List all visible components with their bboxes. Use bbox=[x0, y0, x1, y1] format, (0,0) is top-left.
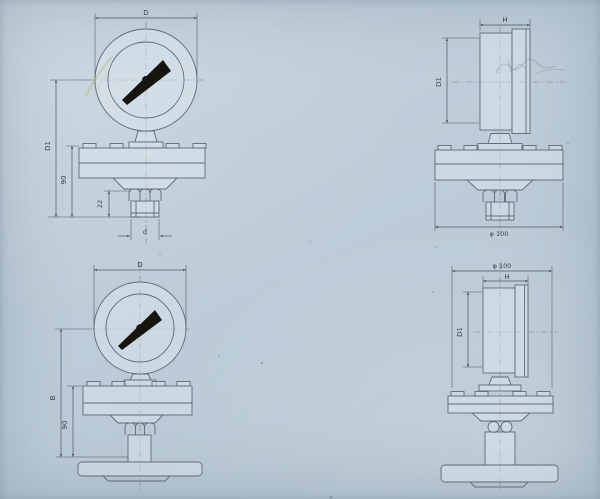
gauge-neck bbox=[130, 374, 151, 380]
hex-fitting-left bbox=[488, 422, 499, 433]
label-body-height: 90 bbox=[61, 421, 69, 430]
neck-collar bbox=[478, 144, 522, 151]
label-dial-diameter: D bbox=[137, 261, 142, 269]
diaphragm-flange bbox=[448, 396, 553, 413]
pencil-tail bbox=[536, 69, 564, 73]
lower-housing bbox=[113, 178, 177, 189]
d1-extension-lines bbox=[442, 38, 479, 123]
label-thread-diameter: d bbox=[143, 228, 147, 236]
gauge-neck bbox=[135, 131, 157, 142]
label-overall-height: D1 bbox=[44, 141, 52, 151]
label-case-depth: H bbox=[504, 273, 509, 281]
gauge-neck bbox=[488, 134, 512, 144]
label-case-depth: H bbox=[502, 16, 507, 24]
hex-fitting-right bbox=[501, 422, 512, 433]
technical-drawing: D D1 90 22 d bbox=[0, 0, 600, 499]
sanitary-flange bbox=[441, 465, 558, 482]
blueprint-page: D D1 90 22 d bbox=[0, 0, 600, 499]
extension-stem bbox=[128, 435, 151, 462]
lower-housing bbox=[110, 415, 163, 423]
label-body-height: 90 bbox=[60, 176, 68, 185]
thread-stud bbox=[131, 201, 159, 217]
label-overall-height: B bbox=[49, 395, 57, 400]
label-dial-diameter: D bbox=[143, 9, 148, 17]
view-front-flanged: D B 90 bbox=[49, 261, 202, 492]
flange-bolts bbox=[451, 392, 550, 397]
thread-stud bbox=[486, 202, 514, 220]
hex-nut bbox=[129, 189, 161, 201]
case-bezel bbox=[512, 29, 530, 134]
label-flange-diameter: φ 100 bbox=[493, 262, 512, 270]
neck-collar bbox=[129, 142, 163, 148]
diaphragm-flange bbox=[435, 150, 563, 180]
label-case-height: D1 bbox=[456, 327, 464, 337]
label-flange-diameter: φ 100 bbox=[490, 230, 509, 238]
label-nut-length: 22 bbox=[96, 200, 104, 208]
case-body bbox=[483, 288, 515, 373]
view-side-threaded: H D1 φ 100 bbox=[435, 16, 566, 238]
d1-extension-lines bbox=[463, 292, 482, 367]
neck-collar bbox=[124, 380, 156, 386]
needle-pivot bbox=[142, 76, 150, 84]
lower-housing bbox=[467, 180, 533, 190]
needle-pivot bbox=[136, 324, 144, 332]
lower-housing bbox=[472, 413, 530, 421]
label-case-height: D1 bbox=[435, 77, 443, 87]
sanitary-flange bbox=[78, 462, 202, 476]
case-bezel bbox=[515, 285, 528, 377]
flange-lip bbox=[103, 476, 170, 481]
view-side-flanged: φ 100 H D1 bbox=[441, 262, 558, 493]
case-body bbox=[480, 33, 512, 130]
diaphragm-flange bbox=[83, 386, 192, 415]
neck-collar bbox=[479, 385, 521, 391]
view-front-threaded: D D1 90 22 d bbox=[44, 9, 206, 243]
flange-lip bbox=[470, 482, 528, 487]
gauge-neck bbox=[489, 377, 511, 385]
extension-stem bbox=[485, 432, 515, 465]
